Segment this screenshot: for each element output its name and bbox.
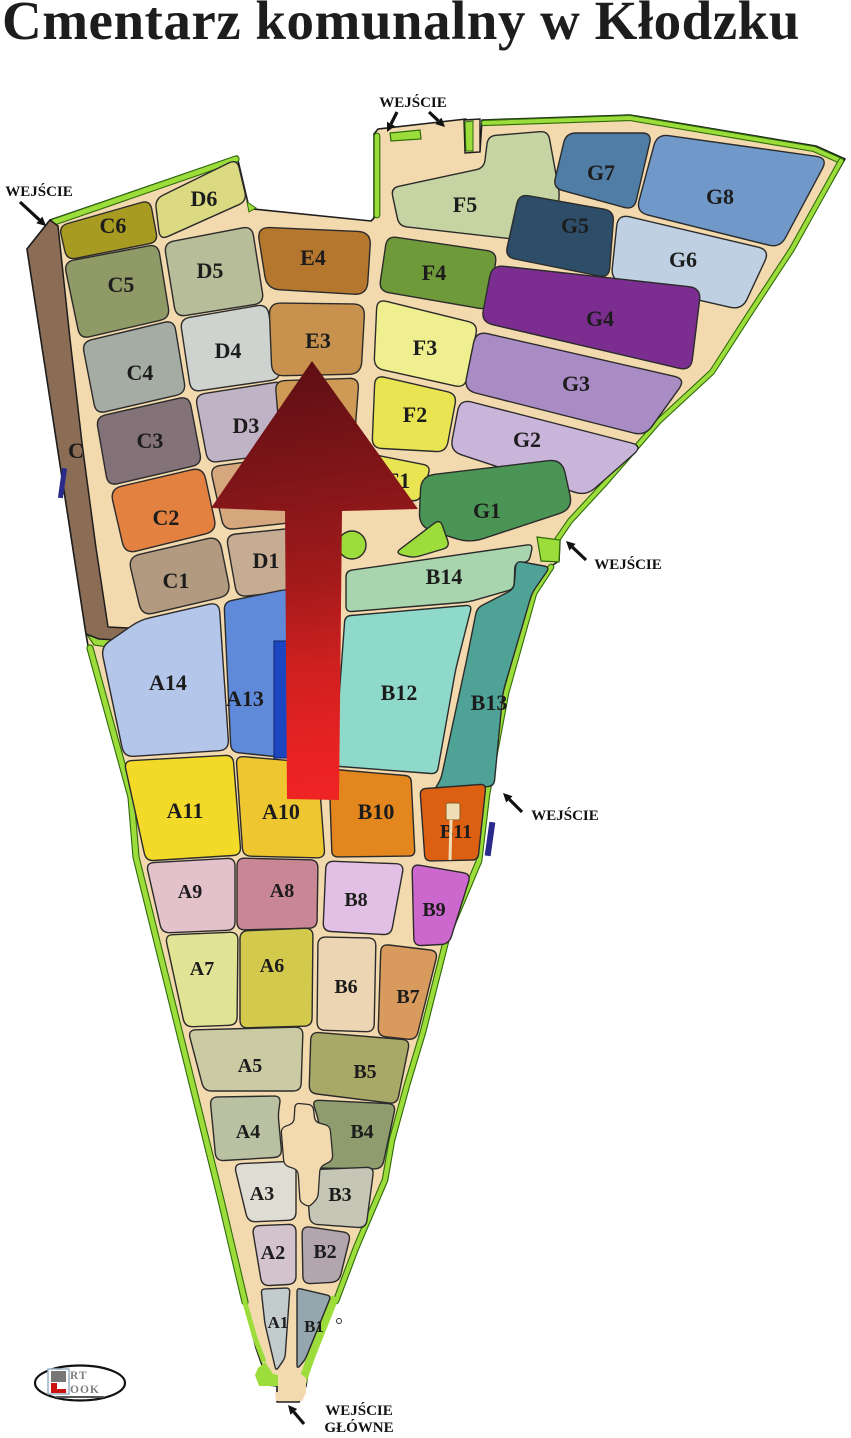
- svg-text:B2: B2: [313, 1241, 336, 1263]
- svg-text:B12: B12: [381, 680, 418, 705]
- svg-text:A7: A7: [190, 958, 214, 980]
- svg-text:A5: A5: [238, 1055, 262, 1077]
- svg-text:C: C: [68, 438, 84, 463]
- svg-text:B6: B6: [334, 976, 357, 998]
- svg-text:WEJŚCIE: WEJŚCIE: [594, 556, 662, 573]
- svg-text:B3: B3: [328, 1184, 351, 1206]
- svg-text:WEJŚCIE: WEJŚCIE: [325, 1402, 393, 1419]
- svg-text:C3: C3: [137, 428, 164, 453]
- svg-text:G1: G1: [473, 498, 501, 523]
- svg-text:A1: A1: [268, 1313, 289, 1332]
- svg-text:B10: B10: [358, 799, 395, 824]
- svg-text:C6: C6: [100, 213, 127, 238]
- svg-text:G4: G4: [586, 306, 614, 331]
- svg-text:F2: F2: [403, 402, 427, 427]
- svg-text:F4: F4: [422, 260, 446, 285]
- svg-text:B5: B5: [353, 1061, 376, 1083]
- svg-text:E3: E3: [305, 328, 331, 353]
- svg-text:B13: B13: [471, 690, 508, 715]
- svg-text:G2: G2: [513, 427, 541, 452]
- svg-text:A2: A2: [261, 1242, 285, 1264]
- svg-text:G6: G6: [669, 247, 697, 272]
- svg-text:B14: B14: [426, 564, 463, 589]
- svg-text:C2: C2: [153, 505, 180, 530]
- svg-text:B11: B11: [440, 821, 472, 843]
- svg-text:A10: A10: [262, 799, 300, 824]
- svg-text:A13: A13: [226, 686, 264, 711]
- svg-text:C5: C5: [108, 272, 135, 297]
- svg-text:C4: C4: [127, 360, 154, 385]
- svg-text:E4: E4: [300, 245, 326, 270]
- svg-text:A14: A14: [149, 670, 187, 695]
- svg-text:G5: G5: [561, 213, 589, 238]
- svg-text:D6: D6: [191, 186, 218, 211]
- svg-text:RT: RT: [70, 1370, 88, 1382]
- svg-text:B9: B9: [422, 899, 445, 921]
- svg-text:G3: G3: [562, 371, 590, 396]
- svg-text:A4: A4: [236, 1121, 260, 1143]
- svg-text:WEJŚCIE: WEJŚCIE: [379, 94, 447, 111]
- svg-text:D3: D3: [233, 413, 260, 438]
- svg-text:B8: B8: [344, 889, 367, 911]
- svg-text:A3: A3: [250, 1183, 274, 1205]
- svg-text:D1: D1: [253, 548, 280, 573]
- svg-text:A9: A9: [178, 881, 202, 903]
- svg-text:G7: G7: [587, 160, 615, 185]
- svg-text:D4: D4: [215, 338, 242, 363]
- svg-text:B4: B4: [350, 1121, 373, 1143]
- svg-text:B1: B1: [304, 1317, 324, 1336]
- svg-text:D5: D5: [197, 258, 224, 283]
- svg-text:Cmentarz komunalny w Kłodzku: Cmentarz komunalny w Kłodzku: [2, 0, 800, 51]
- svg-text:A8: A8: [270, 880, 294, 902]
- svg-text:WEJŚCIE: WEJŚCIE: [5, 183, 73, 200]
- svg-text:F3: F3: [413, 335, 437, 360]
- svg-text:C1: C1: [163, 568, 190, 593]
- svg-text:WEJŚCIE: WEJŚCIE: [531, 807, 599, 824]
- svg-text:A11: A11: [167, 798, 204, 823]
- svg-text:B7: B7: [396, 986, 419, 1008]
- svg-text:GŁÓWNE: GŁÓWNE: [324, 1419, 393, 1436]
- svg-text:A6: A6: [260, 955, 284, 977]
- svg-text:G8: G8: [706, 184, 734, 209]
- svg-text:F5: F5: [453, 192, 477, 217]
- svg-text:OOK: OOK: [70, 1384, 100, 1396]
